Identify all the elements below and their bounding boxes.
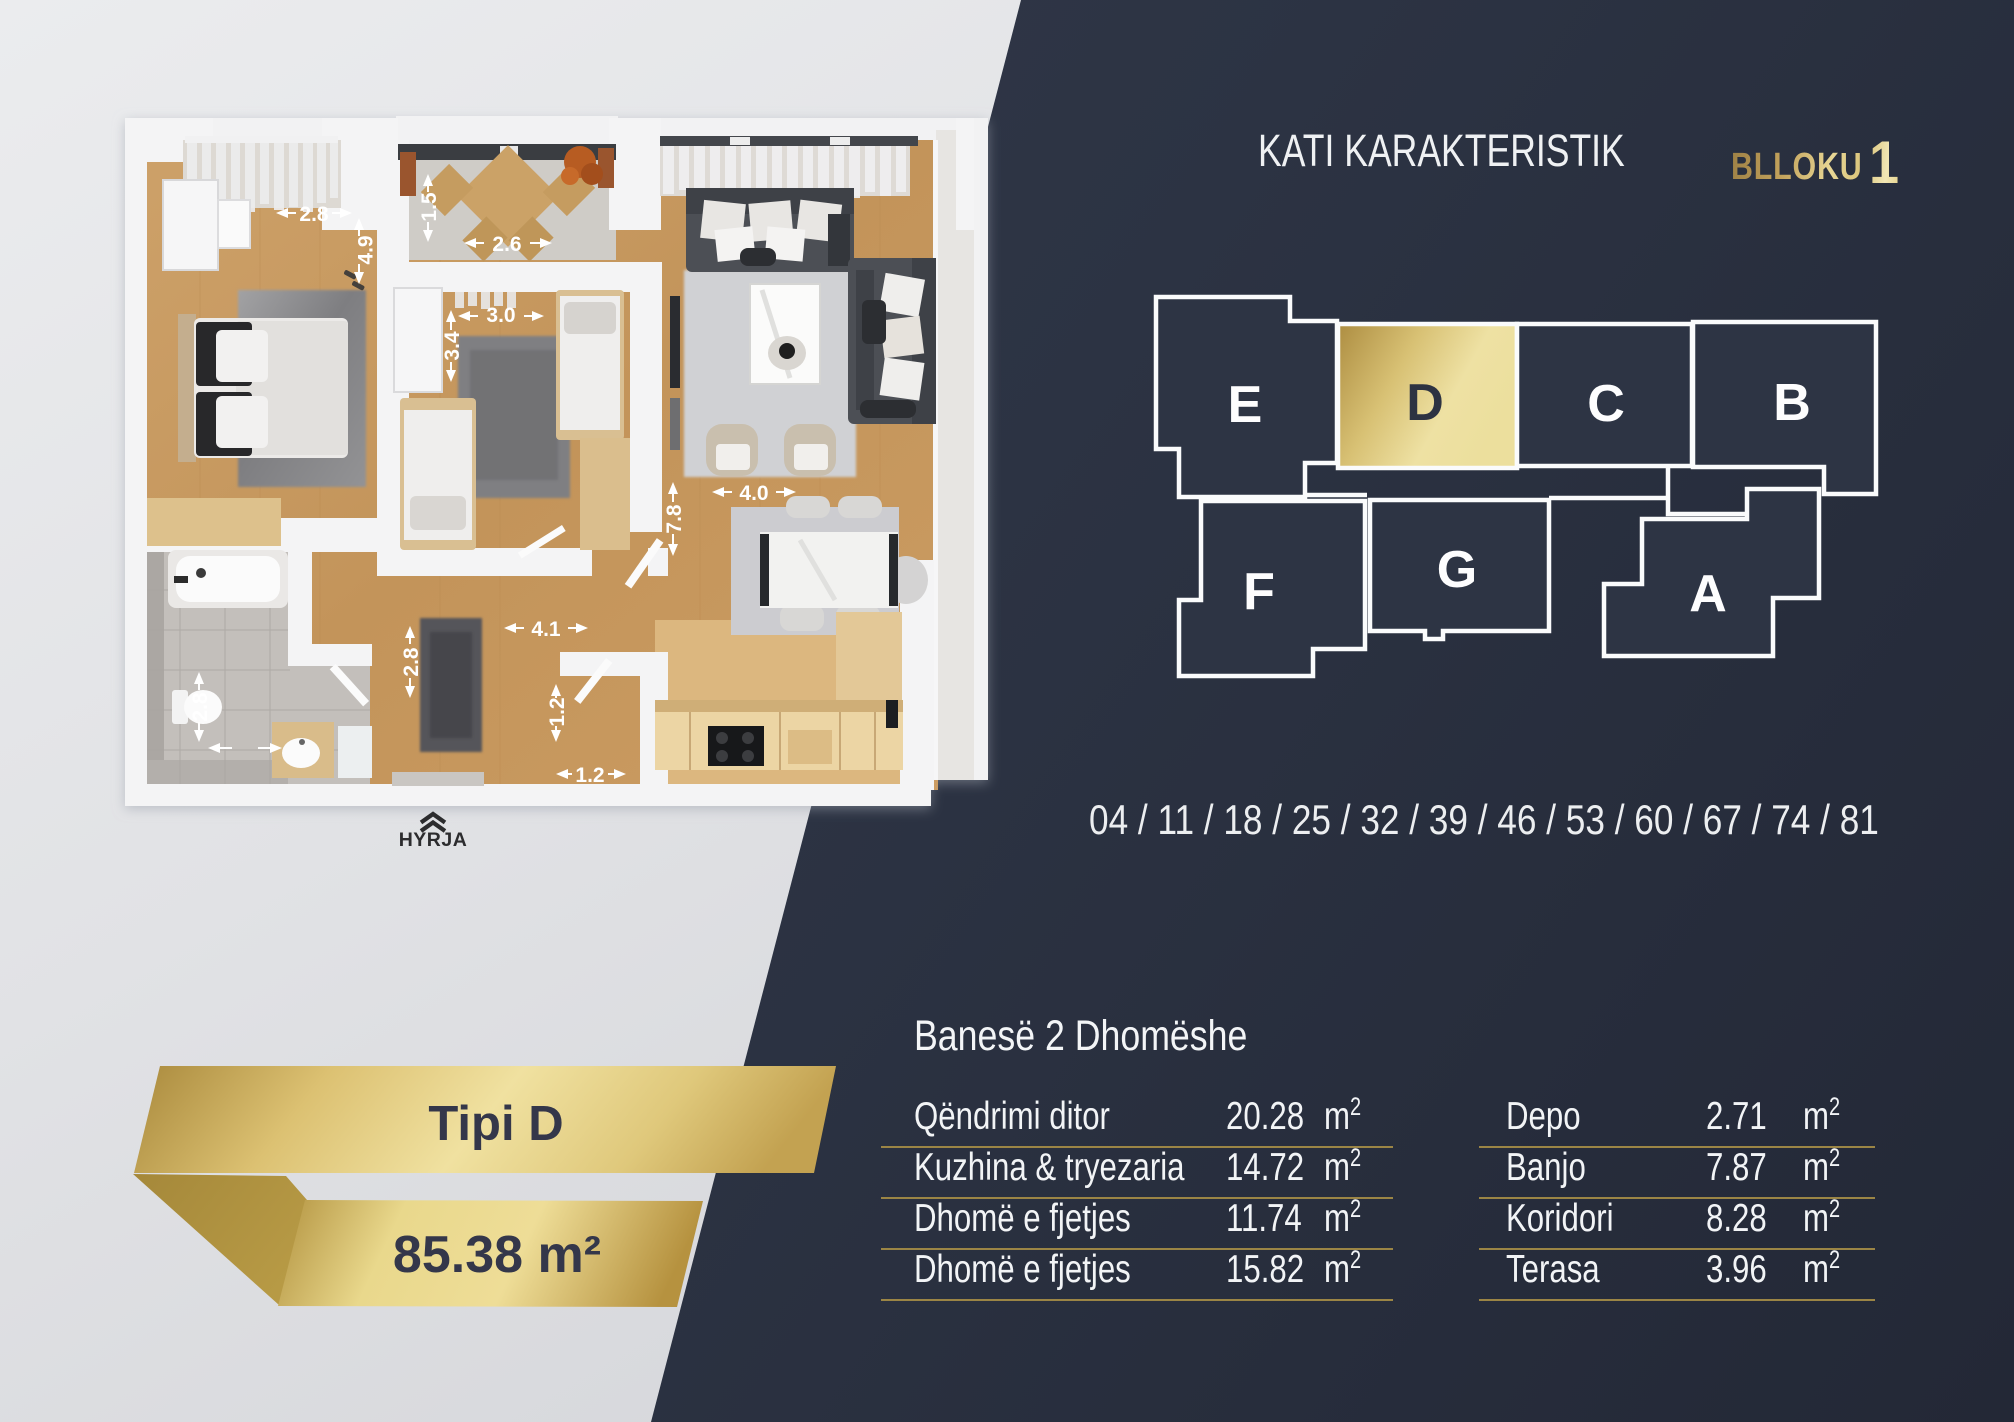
svg-text:1.5: 1.5	[418, 192, 441, 222]
svg-text:E: E	[1228, 376, 1263, 434]
svg-text:1.2: 1.2	[575, 764, 604, 787]
svg-text:2.8: 2.8	[299, 203, 329, 226]
svg-text:Tipi D: Tipi D	[428, 1097, 563, 1151]
svg-text:A: A	[1689, 565, 1727, 623]
svg-text:2.8: 2.8	[189, 692, 212, 722]
svg-text:7.8: 7.8	[663, 504, 686, 534]
svg-text:4.1: 4.1	[531, 618, 561, 641]
svg-text:F: F	[1243, 563, 1275, 621]
svg-text:3.4: 3.4	[441, 331, 464, 361]
svg-text:2.6: 2.6	[492, 233, 521, 256]
svg-text:B: B	[1773, 374, 1811, 432]
svg-text:HYRJA: HYRJA	[399, 829, 468, 851]
svg-text:85.38 m²: 85.38 m²	[393, 1226, 601, 1284]
svg-text:4.9: 4.9	[355, 235, 378, 264]
svg-text:G: G	[1437, 541, 1477, 599]
svg-text:C: C	[1587, 375, 1625, 433]
svg-text:3.0: 3.0	[486, 304, 515, 327]
svg-text:1.2: 1.2	[546, 697, 569, 726]
svg-text:4.0: 4.0	[739, 482, 768, 505]
svg-text:D: D	[1406, 374, 1444, 432]
svg-text:2.8: 2.8	[400, 647, 423, 677]
